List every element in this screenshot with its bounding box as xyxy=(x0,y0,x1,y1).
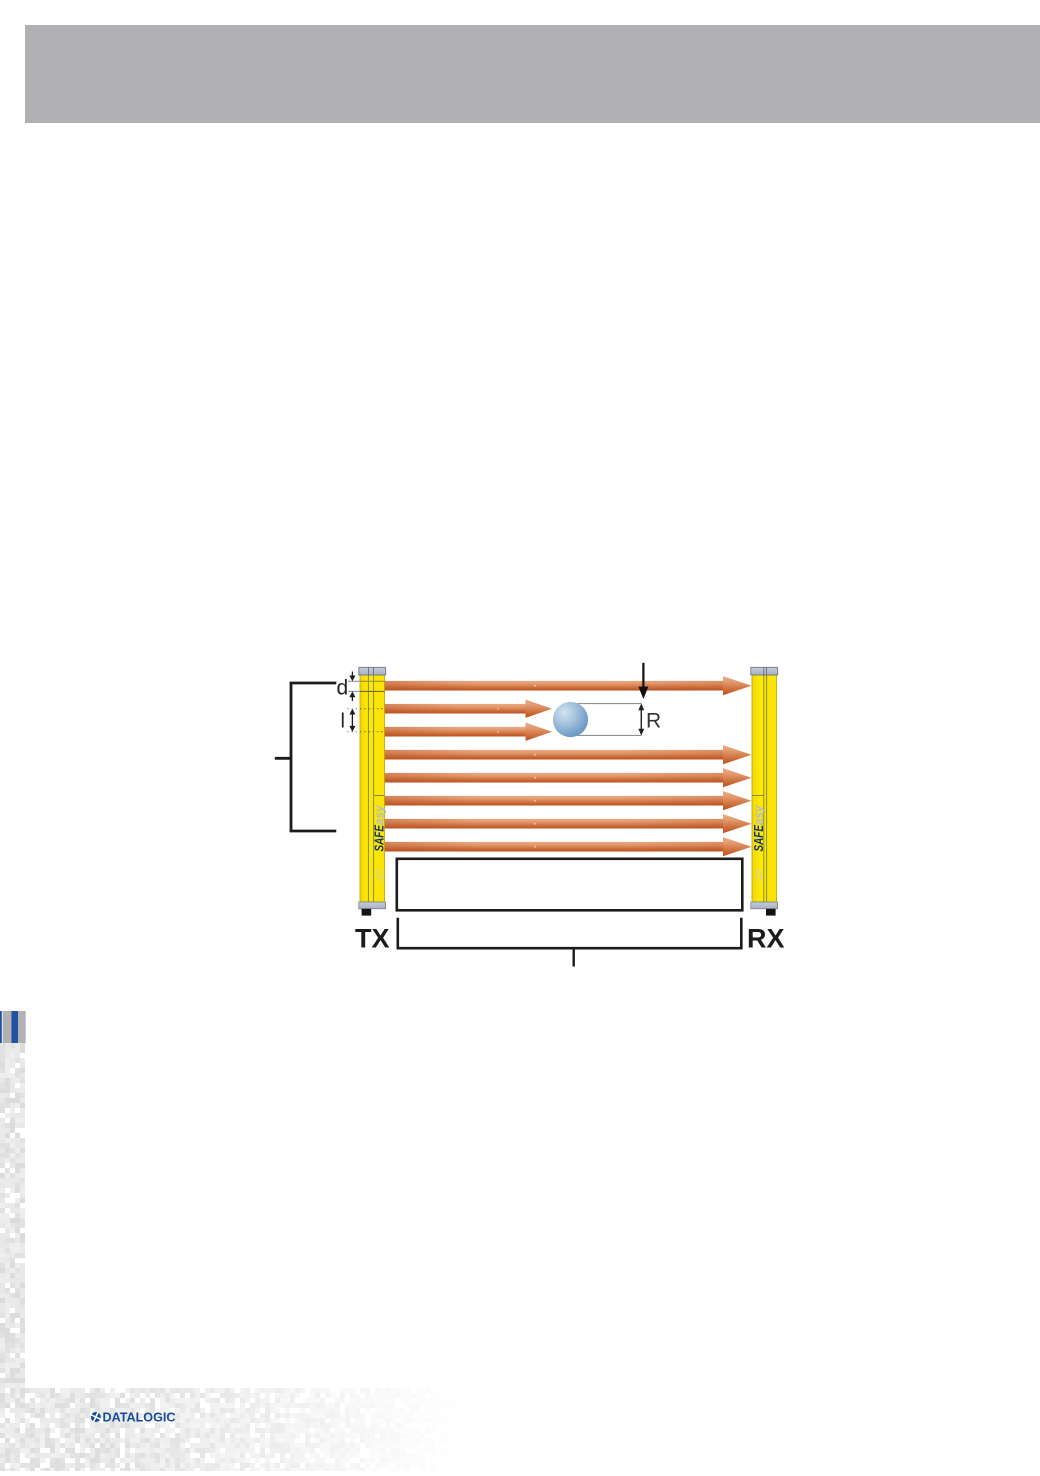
svg-text:DATALOGIC: DATALOGIC xyxy=(103,1411,176,1425)
svg-text:SAFEasy: SAFEasy xyxy=(372,805,386,852)
svg-text:SAFEasy: SAFEasy xyxy=(752,805,766,852)
svg-text:d: d xyxy=(337,677,349,700)
svg-text:R: R xyxy=(646,710,661,733)
svg-text:TX: TX xyxy=(355,924,390,954)
svg-text:RX: RX xyxy=(747,924,785,954)
svg-text:l: l xyxy=(341,711,345,733)
